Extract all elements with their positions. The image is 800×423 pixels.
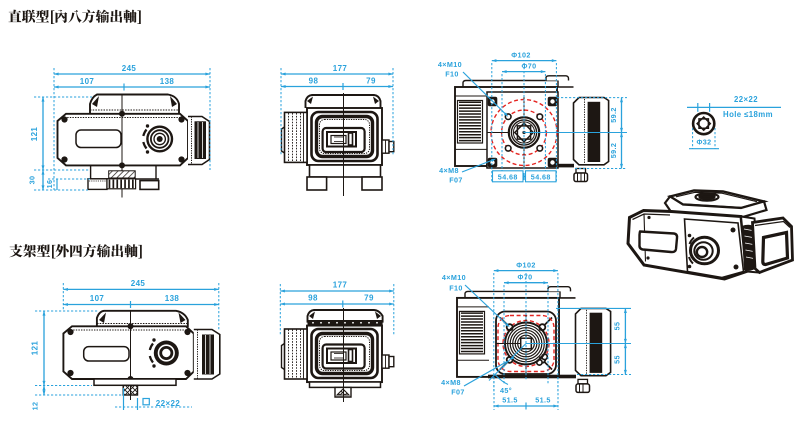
svg-text:54.68: 54.68 (498, 172, 518, 181)
svg-text:79: 79 (364, 294, 374, 303)
svg-text:12: 12 (31, 402, 40, 411)
svg-text:121: 121 (31, 341, 40, 356)
svg-text:F07: F07 (451, 388, 465, 397)
svg-text:177: 177 (333, 64, 348, 73)
svg-text:16: 16 (45, 180, 54, 189)
svg-text:4×M10: 4×M10 (442, 273, 466, 282)
svg-text:51.5: 51.5 (502, 396, 518, 405)
svg-text:59.2: 59.2 (609, 143, 618, 159)
svg-text:F10: F10 (449, 284, 463, 293)
svg-text:Φ70: Φ70 (517, 273, 532, 282)
svg-text:245: 245 (131, 279, 146, 288)
svg-text:Hole ≤18mm: Hole ≤18mm (723, 110, 773, 119)
svg-text:55: 55 (613, 322, 622, 331)
svg-text:F10: F10 (445, 70, 459, 79)
svg-text:Φ32: Φ32 (696, 138, 711, 147)
svg-text:Φ102: Φ102 (516, 261, 536, 270)
svg-text:98: 98 (309, 77, 319, 86)
svg-text:22×22: 22×22 (734, 95, 758, 104)
svg-text:121: 121 (30, 127, 39, 142)
svg-text:59.2: 59.2 (609, 107, 618, 123)
svg-text:138: 138 (160, 77, 175, 86)
svg-text:Φ102: Φ102 (511, 51, 531, 60)
svg-text:22×22: 22×22 (156, 399, 181, 408)
svg-text:107: 107 (80, 77, 95, 86)
svg-text:54.68: 54.68 (531, 172, 551, 181)
svg-text:4×M10: 4×M10 (438, 60, 462, 69)
svg-text:45°: 45° (500, 386, 512, 395)
svg-text:138: 138 (165, 294, 180, 303)
svg-text:245: 245 (122, 64, 137, 73)
svg-text:4×M8: 4×M8 (441, 378, 461, 387)
svg-text:98: 98 (308, 294, 318, 303)
svg-text:107: 107 (90, 294, 105, 303)
svg-text:51.5: 51.5 (535, 396, 551, 405)
svg-text:79: 79 (366, 77, 376, 86)
svg-text:177: 177 (333, 281, 348, 290)
svg-text:F07: F07 (449, 176, 463, 185)
svg-text:55: 55 (613, 355, 622, 364)
svg-text:30: 30 (28, 176, 37, 185)
svg-text:4×M8: 4×M8 (439, 166, 459, 175)
